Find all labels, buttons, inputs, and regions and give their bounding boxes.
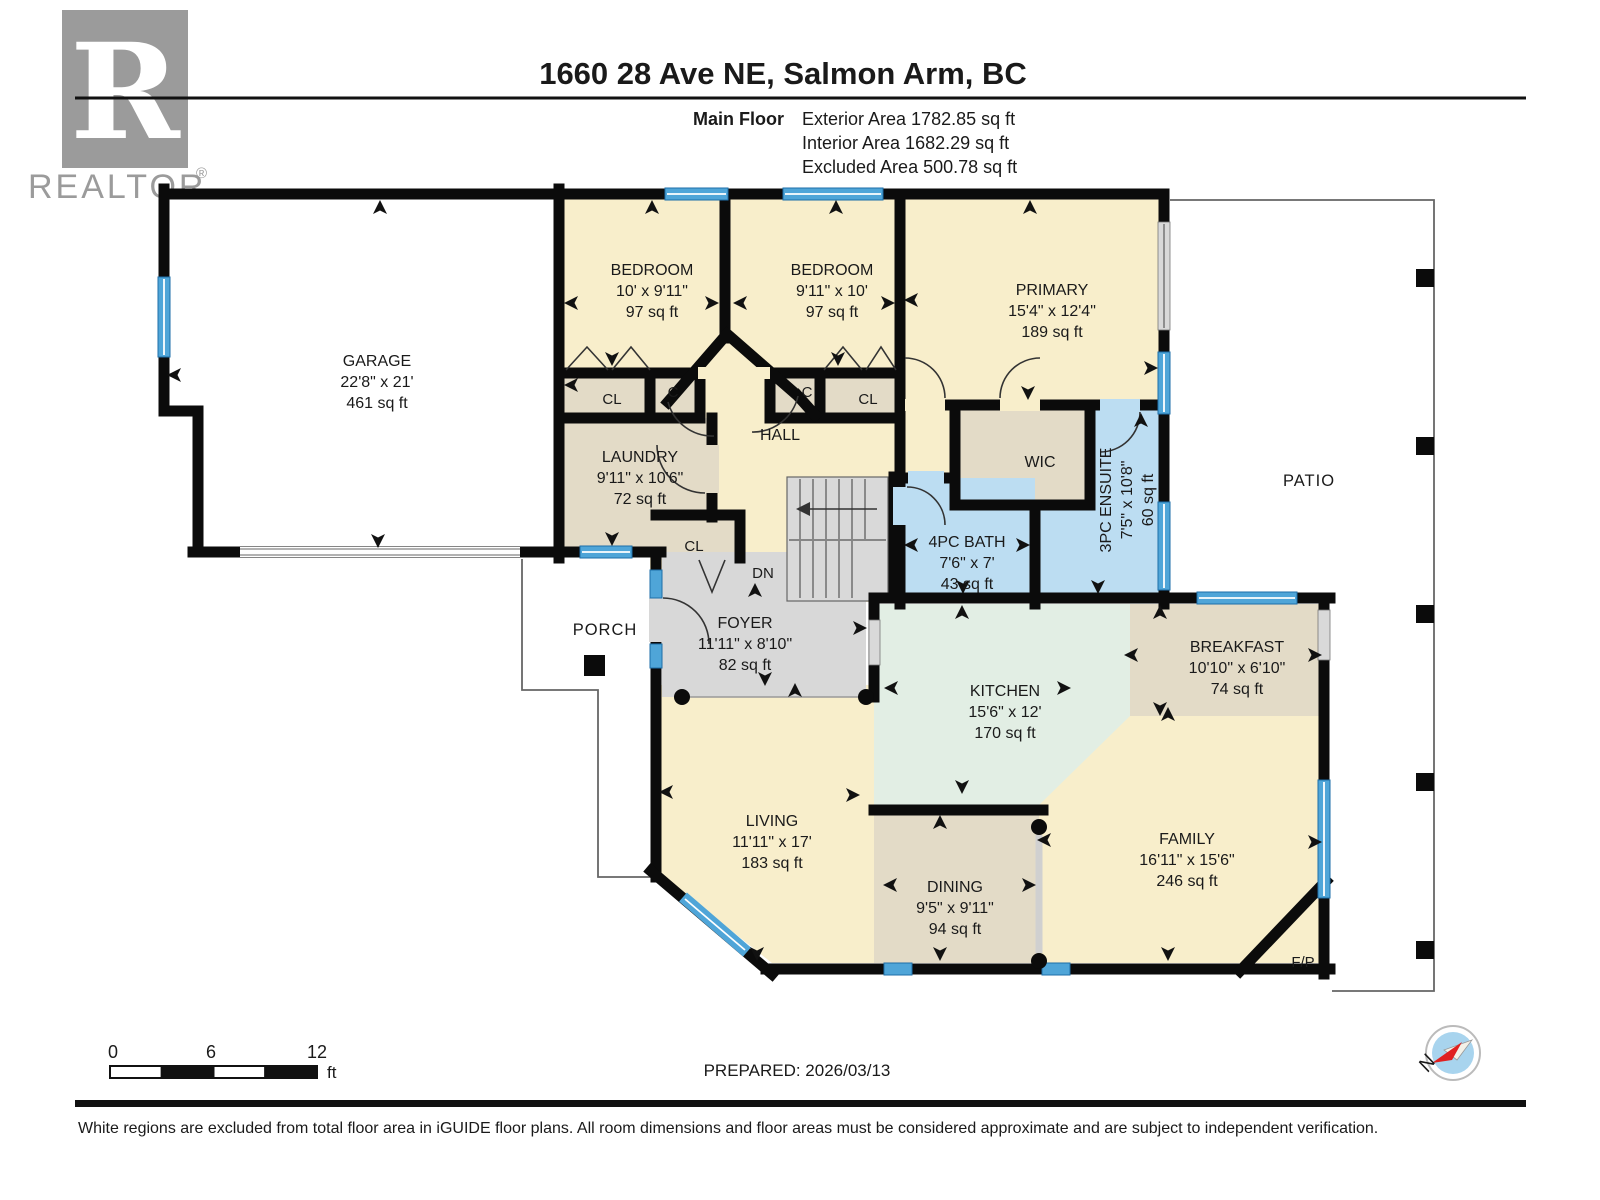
patio-post: [1416, 941, 1434, 959]
excluded-area: Excluded Area 500.78 sq ft: [802, 157, 1017, 177]
exterior-area: Exterior Area 1782.85 sq ft: [802, 109, 1015, 129]
patio-name: PATIO: [1283, 472, 1335, 490]
small-closet-label: C: [802, 384, 813, 401]
kitchen-pass-opening: [869, 620, 880, 665]
breakfast-side-window: [1318, 610, 1330, 660]
stairs: [787, 477, 888, 601]
primary-name: PRIMARY: [1016, 282, 1089, 299]
breakfast-dims: 10'10" x 6'10": [1189, 660, 1286, 677]
scale-tick-12: 12: [307, 1042, 327, 1062]
patio-post: [1416, 269, 1434, 287]
room-garage-fill: [164, 194, 559, 552]
page-title: 1660 28 Ave NE, Salmon Arm, BC: [539, 56, 1027, 91]
porch-name: PORCH: [573, 621, 638, 639]
closet-label: CL: [858, 391, 877, 408]
header: R REALTOR ® 1660 28 Ave NE, Salmon Arm, …: [28, 10, 1526, 206]
floor-plan-page: R REALTOR ® 1660 28 Ave NE, Salmon Arm, …: [0, 0, 1600, 1200]
bath-dims: 7'6" x 7': [939, 555, 994, 572]
foyer-name: FOYER: [717, 615, 772, 632]
garage-dims: 22'8" x 21': [340, 374, 413, 391]
patio-post: [1416, 437, 1434, 455]
laundry-name: LAUNDRY: [602, 449, 679, 466]
interior-area: Interior Area 1682.29 sq ft: [802, 133, 1009, 153]
bedroom2-name: BEDROOM: [791, 262, 874, 279]
bath-name: 4PC BATH: [928, 534, 1005, 551]
hall-name: HALL: [760, 427, 800, 444]
bedroom2-area: 97 sq ft: [806, 304, 859, 321]
living-dims: 11'11" x 17': [732, 834, 812, 851]
kitchen-name: KITCHEN: [970, 683, 1040, 700]
patio-post: [1416, 605, 1434, 623]
footer-divider: [75, 1100, 1526, 1107]
family-name: FAMILY: [1159, 831, 1215, 848]
breakfast-area: 74 sq ft: [1211, 681, 1264, 698]
disclaimer-text: White regions are excluded from total fl…: [78, 1120, 1378, 1137]
footer: 0 6 12 ft PREPARED: 2026/03/13 N White r…: [75, 1026, 1526, 1137]
floor-label: Main Floor: [693, 109, 784, 129]
primary-dims: 15'4" x 12'4": [1008, 303, 1096, 320]
garage-area: 461 sq ft: [346, 395, 408, 412]
foyer-dims: 11'11" x 8'10": [698, 636, 792, 653]
ensuite-dims: 7'5" x 10'8": [1119, 461, 1136, 540]
bath-area: 43 sq ft: [941, 576, 994, 593]
primary-area: 189 sq ft: [1021, 324, 1083, 341]
laundry-dims: 9'11" x 10'6": [597, 470, 684, 487]
scale-tick-0: 0: [108, 1042, 118, 1062]
fireplace-label: F/P: [1291, 954, 1314, 971]
patio-post: [1416, 773, 1434, 791]
small-closet-label: C: [668, 384, 679, 401]
family-area: 246 sq ft: [1156, 873, 1218, 890]
bedroom2-dims: 9'11" x 10': [796, 283, 868, 300]
ensuite-name: 3PC ENSUITE: [1098, 448, 1115, 553]
garage-door: [240, 547, 520, 557]
compass-icon: N: [1414, 1026, 1480, 1080]
porch-post: [584, 655, 605, 676]
bedroom1-area: 97 sq ft: [626, 304, 679, 321]
garage-name: GARAGE: [343, 353, 411, 370]
dining-name: DINING: [927, 879, 983, 896]
living-area: 183 sq ft: [741, 855, 803, 872]
closet-label: CL: [602, 391, 621, 408]
dining-dims: 9'5" x 9'11": [916, 900, 994, 917]
laundry-area: 72 sq ft: [614, 491, 667, 508]
registered-mark: ®: [196, 165, 207, 182]
realtor-logo-letter: R: [70, 15, 181, 170]
living-name: LIVING: [746, 813, 798, 830]
family-dims: 16'11" x 15'6": [1139, 852, 1234, 869]
kitchen-area: 170 sq ft: [974, 725, 1036, 742]
foyer-area: 82 sq ft: [719, 657, 772, 674]
scale-tick-6: 6: [206, 1042, 216, 1062]
prepared-date: PREPARED: 2026/03/13: [704, 1061, 891, 1080]
dining-area: 94 sq ft: [929, 921, 982, 938]
scale-unit: ft: [327, 1063, 337, 1082]
breakfast-name: BREAKFAST: [1190, 639, 1284, 656]
bedroom1-name: BEDROOM: [611, 262, 694, 279]
floor-plan-canvas: R REALTOR ® 1660 28 Ave NE, Salmon Arm, …: [0, 0, 1600, 1200]
porch-outline: [522, 559, 651, 877]
ensuite-area: 60 sq ft: [1140, 473, 1157, 526]
wic-name: WIC: [1024, 454, 1055, 471]
bedroom1-dims: 10' x 9'11": [616, 283, 688, 300]
room-primary-fill: [900, 194, 1164, 405]
stairs-down-label: DN: [752, 565, 774, 582]
closet-label: CL: [684, 538, 703, 555]
scale-bar: 0 6 12 ft: [108, 1042, 337, 1082]
kitchen-dims: 15'6" x 12': [968, 704, 1041, 721]
